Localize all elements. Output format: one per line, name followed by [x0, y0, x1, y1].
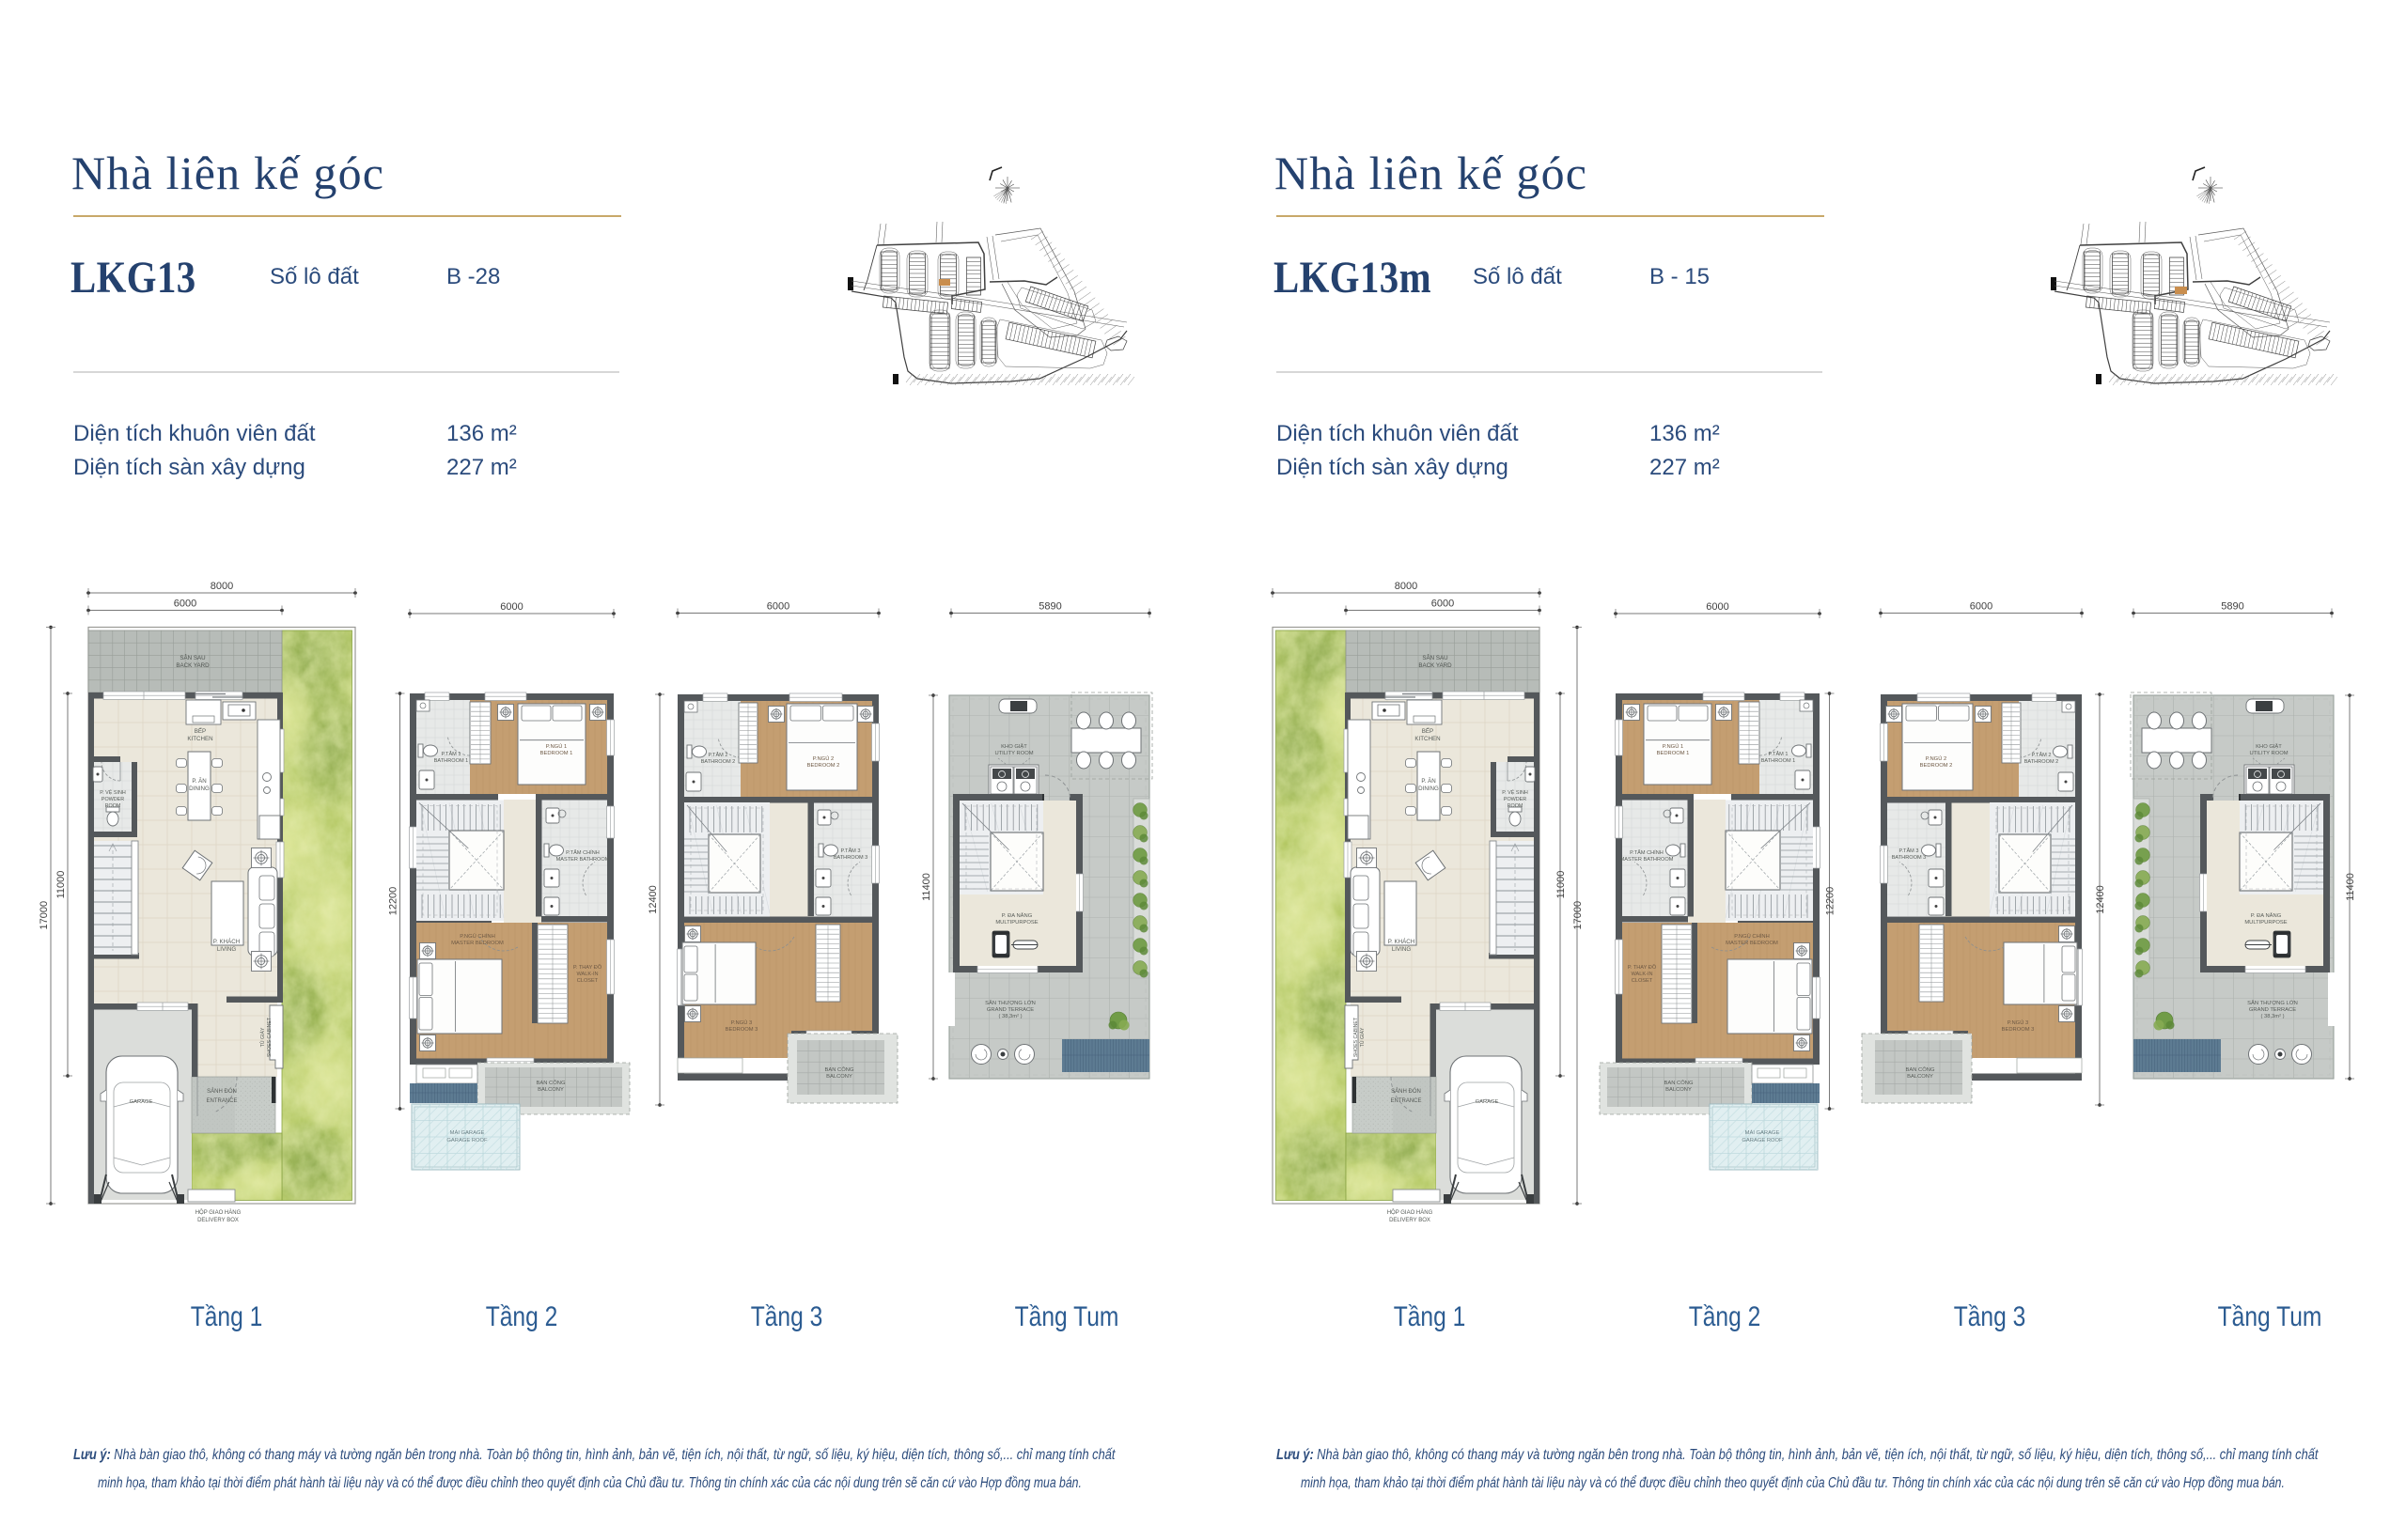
svg-text:P. THAY ĐỒ: P. THAY ĐỒ	[573, 964, 602, 971]
svg-text:MULTIPURPOSE: MULTIPURPOSE	[995, 920, 1038, 926]
svg-text:P.TẮM 1: P.TẮM 1	[1768, 750, 1788, 757]
svg-text:DELIVERY BOX: DELIVERY BOX	[197, 1218, 239, 1223]
svg-text:8000: 8000	[211, 581, 233, 592]
svg-text:MASTER BATHROOM: MASTER BATHROOM	[1620, 857, 1674, 863]
svg-text:KHO GIẶT: KHO GIẶT	[2256, 743, 2282, 750]
svg-text:BEDROOM 1: BEDROOM 1	[1657, 751, 1690, 756]
svg-text:P.TẮM CHÍNH: P.TẮM CHÍNH	[566, 848, 600, 856]
svg-text:SHOES CABINET: SHOES CABINET	[1353, 1017, 1359, 1057]
svg-text:P. VỆ SINH: P. VỆ SINH	[1502, 788, 1528, 796]
svg-text:SÂN THƯỢNG LỚN: SÂN THƯỢNG LỚN	[2247, 1000, 2298, 1006]
svg-text:BATHROOM 2: BATHROOM 2	[2024, 759, 2059, 765]
svg-text:POWDER: POWDER	[1504, 797, 1526, 802]
svg-text:8000: 8000	[1395, 581, 1417, 592]
svg-text:P.NGỦ 3: P.NGỦ 3	[2008, 1019, 2028, 1026]
svg-text:BACK YARD: BACK YARD	[1418, 662, 1452, 669]
svg-text:BAN CÔNG: BAN CÔNG	[1906, 1066, 1935, 1073]
svg-text:BATHROOM 2: BATHROOM 2	[701, 759, 736, 765]
svg-text:P. THAY ĐỒ: P. THAY ĐỒ	[1628, 964, 1657, 971]
svg-text:WALK-IN: WALK-IN	[1631, 972, 1652, 977]
svg-text:BAN CÔNG: BAN CÔNG	[825, 1066, 854, 1073]
svg-text:SÂN THƯỢNG LỚN: SÂN THƯỢNG LỚN	[985, 1000, 1036, 1006]
svg-text:POWDER: POWDER	[102, 797, 124, 802]
svg-text:SÂN SAU: SÂN SAU	[180, 655, 205, 661]
svg-text:BALCONY: BALCONY	[826, 1074, 852, 1080]
svg-text:11000: 11000	[1555, 871, 1567, 899]
svg-text:MASTER BEDROOM: MASTER BEDROOM	[451, 941, 504, 946]
svg-text:BALCONY: BALCONY	[538, 1087, 564, 1093]
svg-text:P.TẮM 3: P.TẮM 3	[840, 847, 860, 854]
svg-text:P.NGỦ CHÍNH: P.NGỦ CHÍNH	[1734, 933, 1770, 940]
svg-text:BAN CÔNG: BAN CÔNG	[537, 1080, 566, 1086]
svg-text:6000: 6000	[767, 601, 789, 613]
svg-text:BATHROOM 3: BATHROOM 3	[1892, 855, 1927, 861]
svg-text:BẾP: BẾP	[1422, 728, 1433, 735]
svg-text:UTILITY ROOM: UTILITY ROOM	[994, 751, 1033, 756]
svg-text:HỘP GIAO HÀNG: HỘP GIAO HÀNG	[1387, 1209, 1433, 1216]
svg-text:BACK YARD: BACK YARD	[176, 662, 210, 669]
svg-text:BEDROOM 3: BEDROOM 3	[2002, 1027, 2035, 1033]
svg-text:LIVING: LIVING	[217, 946, 236, 953]
svg-text:DINING: DINING	[1418, 786, 1439, 792]
svg-text:BATHROOM 3: BATHROOM 3	[834, 855, 868, 861]
svg-text:17000: 17000	[39, 901, 50, 930]
svg-text:P.NGỦ 2: P.NGỦ 2	[1926, 755, 1946, 762]
svg-text:UTILITY ROOM: UTILITY ROOM	[2249, 751, 2288, 756]
svg-text:5890: 5890	[1039, 601, 1061, 613]
svg-text:12400: 12400	[648, 885, 659, 914]
svg-text:BALCONY: BALCONY	[1665, 1087, 1692, 1093]
svg-text:P. ĐA NĂNG: P. ĐA NĂNG	[1002, 912, 1033, 919]
svg-text:GARAGE ROOF: GARAGE ROOF	[446, 1138, 488, 1143]
svg-text:DINING: DINING	[189, 786, 210, 792]
svg-text:6000: 6000	[500, 601, 523, 613]
svg-text:P. ĂN: P. ĂN	[1421, 778, 1435, 785]
svg-text:SÂN SAU: SÂN SAU	[1422, 655, 1447, 661]
svg-text:MULTIPURPOSE: MULTIPURPOSE	[2244, 920, 2287, 926]
svg-text:BATHROOM 1: BATHROOM 1	[434, 758, 469, 764]
svg-text:BEDROOM 2: BEDROOM 2	[1920, 763, 1953, 769]
svg-text:11000: 11000	[55, 871, 67, 899]
svg-text:17000: 17000	[1572, 901, 1584, 930]
svg-text:ROOM: ROOM	[105, 803, 121, 809]
svg-text:ENTRANCE: ENTRANCE	[1390, 1098, 1421, 1104]
svg-text:P.NGỦ 1: P.NGỦ 1	[546, 743, 567, 750]
svg-text:GARAGE: GARAGE	[1476, 1099, 1499, 1105]
svg-text:WALK-IN: WALK-IN	[576, 972, 598, 977]
svg-text:GRAND TERRACE: GRAND TERRACE	[2249, 1007, 2296, 1013]
svg-text:P.TẮM CHÍNH: P.TẮM CHÍNH	[1630, 848, 1664, 856]
svg-text:P.TẮM 2: P.TẮM 2	[2031, 751, 2051, 758]
svg-text:5890: 5890	[2221, 601, 2243, 613]
svg-text:BẾP: BẾP	[195, 728, 206, 735]
svg-text:BEDROOM 1: BEDROOM 1	[540, 751, 573, 756]
svg-text:ENTRANCE: ENTRANCE	[206, 1098, 237, 1104]
svg-text:6000: 6000	[1970, 601, 1992, 613]
svg-text:6000: 6000	[1706, 601, 1728, 613]
svg-text:P.NGỦ 3: P.NGỦ 3	[731, 1019, 752, 1026]
svg-text:GARAGE: GARAGE	[130, 1099, 153, 1105]
svg-text:P. ĂN: P. ĂN	[192, 778, 206, 785]
svg-text:HỘP GIAO HÀNG: HỘP GIAO HÀNG	[195, 1209, 242, 1216]
svg-text:BEDROOM 3: BEDROOM 3	[726, 1027, 758, 1033]
svg-text:MÁI GARAGE: MÁI GARAGE	[450, 1129, 485, 1136]
svg-text:CLOSET: CLOSET	[1632, 978, 1653, 984]
svg-text:12400: 12400	[2095, 885, 2106, 914]
svg-text:( 38,3m² ): ( 38,3m² )	[2260, 1014, 2284, 1019]
svg-text:GRAND TERRACE: GRAND TERRACE	[987, 1007, 1034, 1013]
svg-text:BALCONY: BALCONY	[1907, 1074, 1933, 1080]
svg-text:P.NGỦ 1: P.NGỦ 1	[1663, 743, 1683, 750]
svg-text:P.NGỦ 2: P.NGỦ 2	[813, 755, 834, 762]
svg-text:BEDROOM 2: BEDROOM 2	[807, 763, 840, 769]
svg-text:GARAGE ROOF: GARAGE ROOF	[1742, 1138, 1783, 1143]
svg-text:12200: 12200	[1825, 887, 1836, 916]
svg-text:MASTER BATHROOM: MASTER BATHROOM	[556, 857, 610, 863]
svg-text:KITCHEN: KITCHEN	[187, 736, 212, 742]
svg-text:P.TẮM 1: P.TẮM 1	[441, 750, 461, 757]
svg-text:TỦ GIÀY: TỦ GIÀY	[259, 1027, 266, 1047]
svg-text:MASTER BEDROOM: MASTER BEDROOM	[1726, 941, 1778, 946]
svg-text:6000: 6000	[174, 599, 196, 610]
svg-text:MÁI GARAGE: MÁI GARAGE	[1745, 1129, 1780, 1136]
svg-text:11400: 11400	[921, 873, 932, 901]
svg-text:11400: 11400	[2345, 873, 2356, 901]
svg-text:12200: 12200	[388, 887, 399, 916]
svg-text:KHO GIẶT: KHO GIẶT	[1001, 743, 1027, 750]
svg-text:P.NGỦ CHÍNH: P.NGỦ CHÍNH	[460, 933, 495, 940]
svg-text:BATHROOM 1: BATHROOM 1	[1761, 758, 1796, 764]
svg-text:P.TẮM 2: P.TẮM 2	[708, 751, 727, 758]
svg-text:( 38,3m² ): ( 38,3m² )	[998, 1014, 1022, 1019]
svg-text:DELIVERY BOX: DELIVERY BOX	[1389, 1218, 1430, 1223]
svg-text:BAN CÔNG: BAN CÔNG	[1664, 1080, 1694, 1086]
svg-text:CLOSET: CLOSET	[577, 978, 599, 984]
svg-text:ROOM: ROOM	[1508, 803, 1523, 809]
svg-text:P. ĐA NĂNG: P. ĐA NĂNG	[2251, 912, 2282, 919]
svg-text:SẢNH ĐÓN: SẢNH ĐÓN	[1391, 1088, 1421, 1095]
svg-text:LIVING: LIVING	[1392, 946, 1411, 953]
svg-text:P. KHÁCH: P. KHÁCH	[213, 939, 240, 945]
svg-text:P.TẮM 3: P.TẮM 3	[1898, 847, 1918, 854]
svg-text:6000: 6000	[1431, 599, 1454, 610]
svg-text:P. KHÁCH: P. KHÁCH	[1388, 939, 1414, 945]
svg-text:P. VỆ SINH: P. VỆ SINH	[100, 788, 126, 796]
svg-text:SHOES CABINET: SHOES CABINET	[267, 1017, 273, 1057]
svg-text:TỦ GIÀY: TỦ GIÀY	[1359, 1027, 1366, 1047]
svg-text:SẢNH ĐÓN: SẢNH ĐÓN	[207, 1088, 237, 1095]
svg-text:KITCHEN: KITCHEN	[1414, 736, 1440, 742]
